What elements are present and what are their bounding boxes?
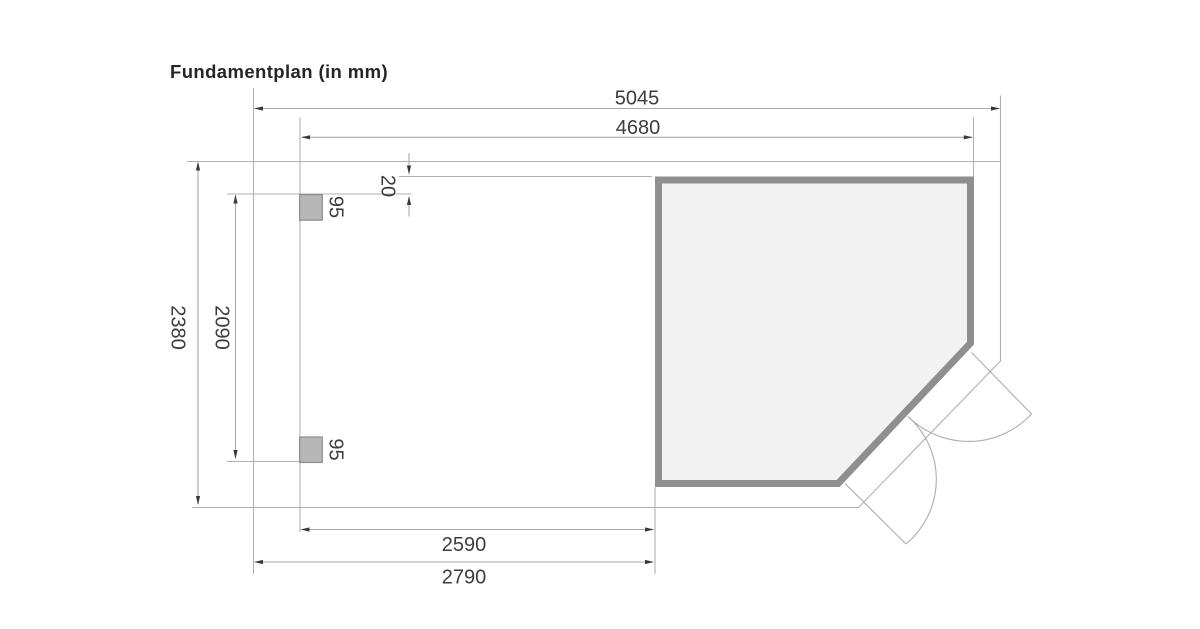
svg-text:2090: 2090 xyxy=(211,305,233,350)
svg-text:95: 95 xyxy=(325,196,347,218)
svg-text:2380: 2380 xyxy=(167,305,189,350)
svg-text:95: 95 xyxy=(325,438,347,460)
svg-text:Fundamentplan (in mm): Fundamentplan (in mm) xyxy=(170,61,388,82)
svg-text:2590: 2590 xyxy=(442,534,487,556)
svg-text:2790: 2790 xyxy=(442,567,487,589)
svg-text:5045: 5045 xyxy=(615,88,660,110)
svg-text:20: 20 xyxy=(377,175,399,197)
svg-text:4680: 4680 xyxy=(616,117,661,139)
